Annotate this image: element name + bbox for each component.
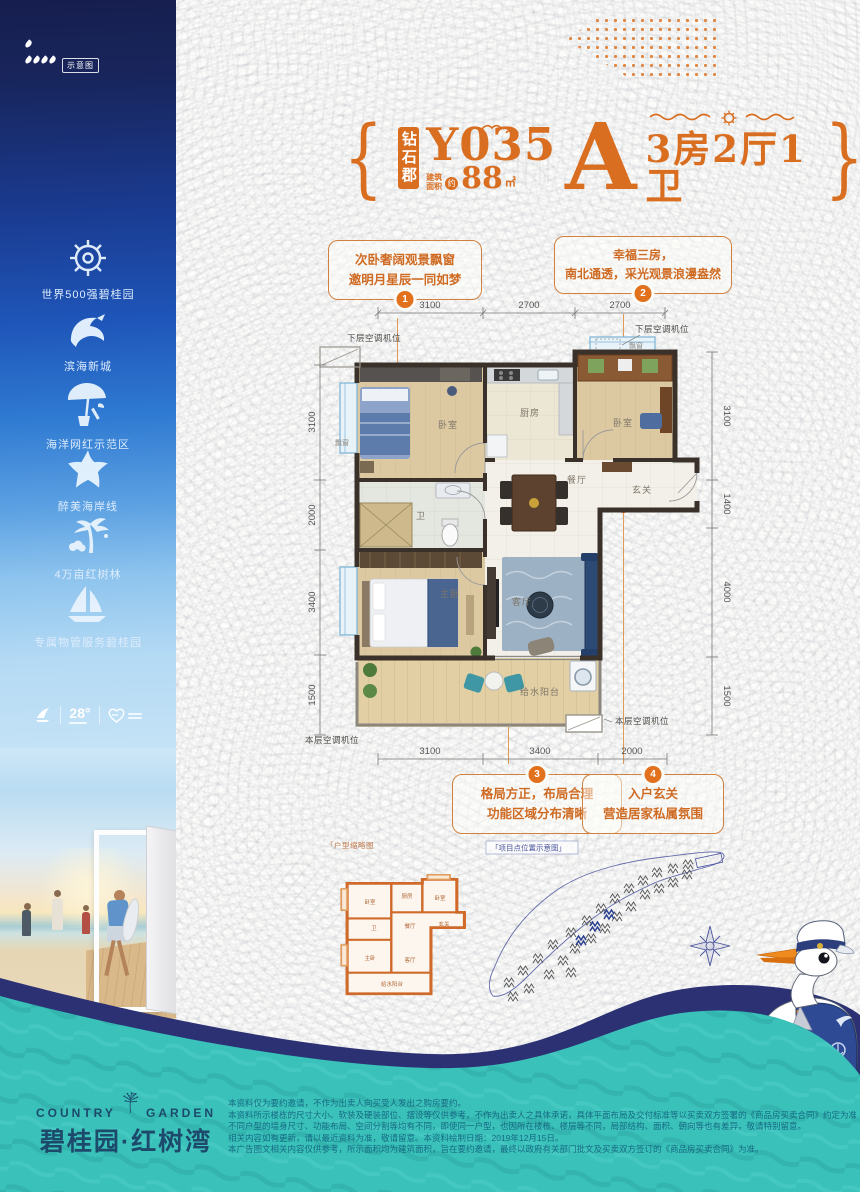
poster-page: 示意图 世界500强碧桂园 滨海新城 — [0, 0, 860, 1192]
brand-en-row: COUNTRY GARDEN — [36, 1082, 216, 1120]
feature-label: 4万亩红树林 — [54, 566, 121, 582]
feature-property-service: 专属物管服务碧桂园 — [0, 584, 176, 650]
svg-text:卫: 卫 — [416, 511, 426, 521]
model-area-column: Y035 建筑面积 约 88 ㎡ — [426, 124, 556, 192]
badge-subtext-bars — [128, 711, 142, 719]
starfish-icon — [66, 448, 110, 492]
svg-text:餐厅: 餐厅 — [567, 474, 587, 485]
brand-en-left: COUNTRY — [36, 1106, 116, 1120]
unit-thumbnail-label: 「户型缩略图 — [326, 840, 374, 850]
svg-text:1400: 1400 — [721, 493, 732, 514]
svg-text:本层空调机位: 本层空调机位 — [615, 716, 669, 726]
temperature-value: 28° — [69, 706, 90, 720]
svg-text:客厅: 客厅 — [512, 596, 532, 607]
area-row: 建筑面积 约 88 ㎡ — [426, 166, 516, 192]
svg-text:厨房: 厨房 — [401, 892, 413, 900]
tree-icon — [119, 1082, 143, 1124]
partner-badges: 28° — [8, 706, 168, 724]
temperature-badge: 28° — [69, 706, 90, 724]
feature-mangrove: 4万亩红树林 — [0, 514, 176, 582]
callout-1-line1: 次卧奢阔观景飘窗 — [335, 250, 475, 270]
callout-1-line2: 邀明月星辰一同如梦 — [335, 270, 475, 290]
brand-box-label: 钻石郡 — [398, 131, 419, 185]
sidebar: 示意图 世界500强碧桂园 滨海新城 — [0, 0, 176, 800]
wave-sun-decor — [648, 110, 808, 128]
callout-4-line1: 入户玄关 — [589, 784, 717, 804]
svg-text:飘窗: 飘窗 — [629, 341, 643, 350]
feature-world500: 世界500强碧桂园 — [0, 236, 176, 302]
badge-divider — [99, 706, 100, 724]
left-brace: { — [344, 118, 383, 198]
svg-text:1500: 1500 — [721, 685, 732, 706]
svg-text:2000: 2000 — [307, 504, 318, 525]
svg-text:给水阳台: 给水阳台 — [520, 686, 560, 697]
disclaimer-block: 本资料仅为要约邀请，不作为出卖人向买受人发出之购房要约。 本资料所示楼栋的尺寸大… — [228, 1098, 856, 1156]
callout-4: 4 入户玄关 营造居家私属氛围 — [582, 774, 724, 834]
sailboat-icon — [64, 584, 112, 628]
svg-text:3100: 3100 — [307, 411, 318, 432]
model-code: Y035 — [426, 124, 556, 165]
schematic-badge: 示意图 — [62, 58, 99, 73]
area-caption: 建筑面积 — [426, 174, 442, 192]
svg-text:1500: 1500 — [307, 684, 318, 705]
callout-2: 幸福三房， 南北通透，采光观景浪漫盎然 2 — [554, 236, 732, 294]
feature-label: 专属物管服务碧桂园 — [34, 634, 142, 650]
heart-logo-badge — [108, 708, 142, 723]
callout-1: 次卧奢阔观景飘窗 邀明月星辰一同如梦 1 — [328, 240, 482, 300]
feature-label: 醉美海岸线 — [58, 498, 118, 514]
sail-logo-icon — [34, 707, 52, 723]
svg-text:卧室: 卧室 — [438, 419, 458, 430]
area-unit: ㎡ — [505, 174, 516, 190]
site-plan-label: 「项目点位置示意图」 — [491, 843, 566, 853]
brand-marks-icon — [26, 40, 55, 64]
footer-brand: COUNTRY GARDEN 碧桂园·红树湾 — [36, 1082, 216, 1158]
svg-text:厨房: 厨房 — [520, 407, 540, 418]
callout-4-line2: 营造居家私属氛围 — [589, 804, 717, 824]
svg-text:3400: 3400 — [307, 591, 318, 612]
disclaimer-line: 相关内容如有更新，请以最近资料为准，敬请留意。本资料绘制日期：2019年12月1… — [228, 1133, 856, 1145]
svg-text:下层空调机位: 下层空调机位 — [347, 333, 401, 343]
svg-text:3100: 3100 — [419, 300, 440, 311]
badge-subtext-bar — [69, 722, 87, 724]
umbrella-icon — [64, 382, 112, 430]
svg-text:本层空调机位: 本层空调机位 — [305, 735, 359, 745]
sun-icon — [721, 111, 736, 126]
disclaimer-line: 不同户型的墙身尺寸、功能布局、空间分割等均有不同，即使同一户型，也因所在楼栋、楼… — [228, 1121, 856, 1133]
callout-2-line1: 幸福三房， — [561, 246, 725, 265]
svg-text:2700: 2700 — [609, 300, 630, 311]
feature-coastline: 醉美海岸线 — [0, 448, 176, 514]
svg-text:2000: 2000 — [621, 746, 642, 757]
brand-box: 钻石郡 — [398, 127, 419, 189]
badge-divider — [60, 706, 61, 724]
svg-text:飘窗: 飘窗 — [335, 438, 349, 447]
helm-icon — [66, 236, 110, 280]
svg-text:3100: 3100 — [721, 405, 732, 426]
approx-circle: 约 — [445, 177, 458, 190]
svg-text:3400: 3400 — [529, 746, 550, 757]
spec-column: 3房2厅1卫 — [646, 110, 811, 205]
svg-text:玄关: 玄关 — [632, 484, 652, 495]
disclaimer-line: 本资料所示楼栋的尺寸大小、软装及硬装部位、摆设等仅供参考，不作为出卖人之具体承诺… — [228, 1110, 856, 1122]
svg-text:3100: 3100 — [419, 746, 440, 757]
birds-small-icon — [132, 1093, 137, 1094]
right-brace: } — [825, 118, 860, 198]
title-block: { 钻石郡 Y035 建筑面积 约 88 ㎡ A — [336, 110, 860, 205]
svg-text:卧室: 卧室 — [613, 417, 633, 428]
floor-plan: 3100 2700 2700 3100 3400 2000 3100 2000 … — [290, 295, 770, 775]
feature-label: 世界500强碧桂园 — [41, 286, 134, 302]
heart-logo-icon — [108, 708, 125, 723]
layout-spec: 3房2厅1卫 — [646, 131, 811, 205]
clubhouse-footprint — [695, 853, 722, 867]
unit-letter: A — [565, 122, 636, 194]
svg-text:4000: 4000 — [721, 581, 732, 602]
brand-en-right: GARDEN — [146, 1106, 216, 1120]
feature-demo-zone: 海洋网红示范区 — [0, 382, 176, 452]
disclaimer-line: 本资料仅为要约邀请，不作为出卖人向买受人发出之购房要约。 — [228, 1098, 856, 1110]
palm-icon — [64, 514, 112, 560]
disclaimer-line: 本广告图文相关内容仅供参考，所示面积均为建筑面积，旨在要约邀请，最终以政府有关部… — [228, 1144, 856, 1156]
dolphin-icon — [65, 312, 111, 352]
svg-text:下层空调机位: 下层空调机位 — [635, 324, 689, 334]
feature-label: 滨海新城 — [64, 358, 112, 374]
area-value: 88 — [461, 166, 503, 192]
brand-cn: 碧桂园·红树湾 — [36, 1122, 216, 1158]
svg-text:2700: 2700 — [518, 300, 539, 311]
feature-coastal-city: 滨海新城 — [0, 312, 176, 374]
svg-text:主卧: 主卧 — [440, 588, 460, 599]
